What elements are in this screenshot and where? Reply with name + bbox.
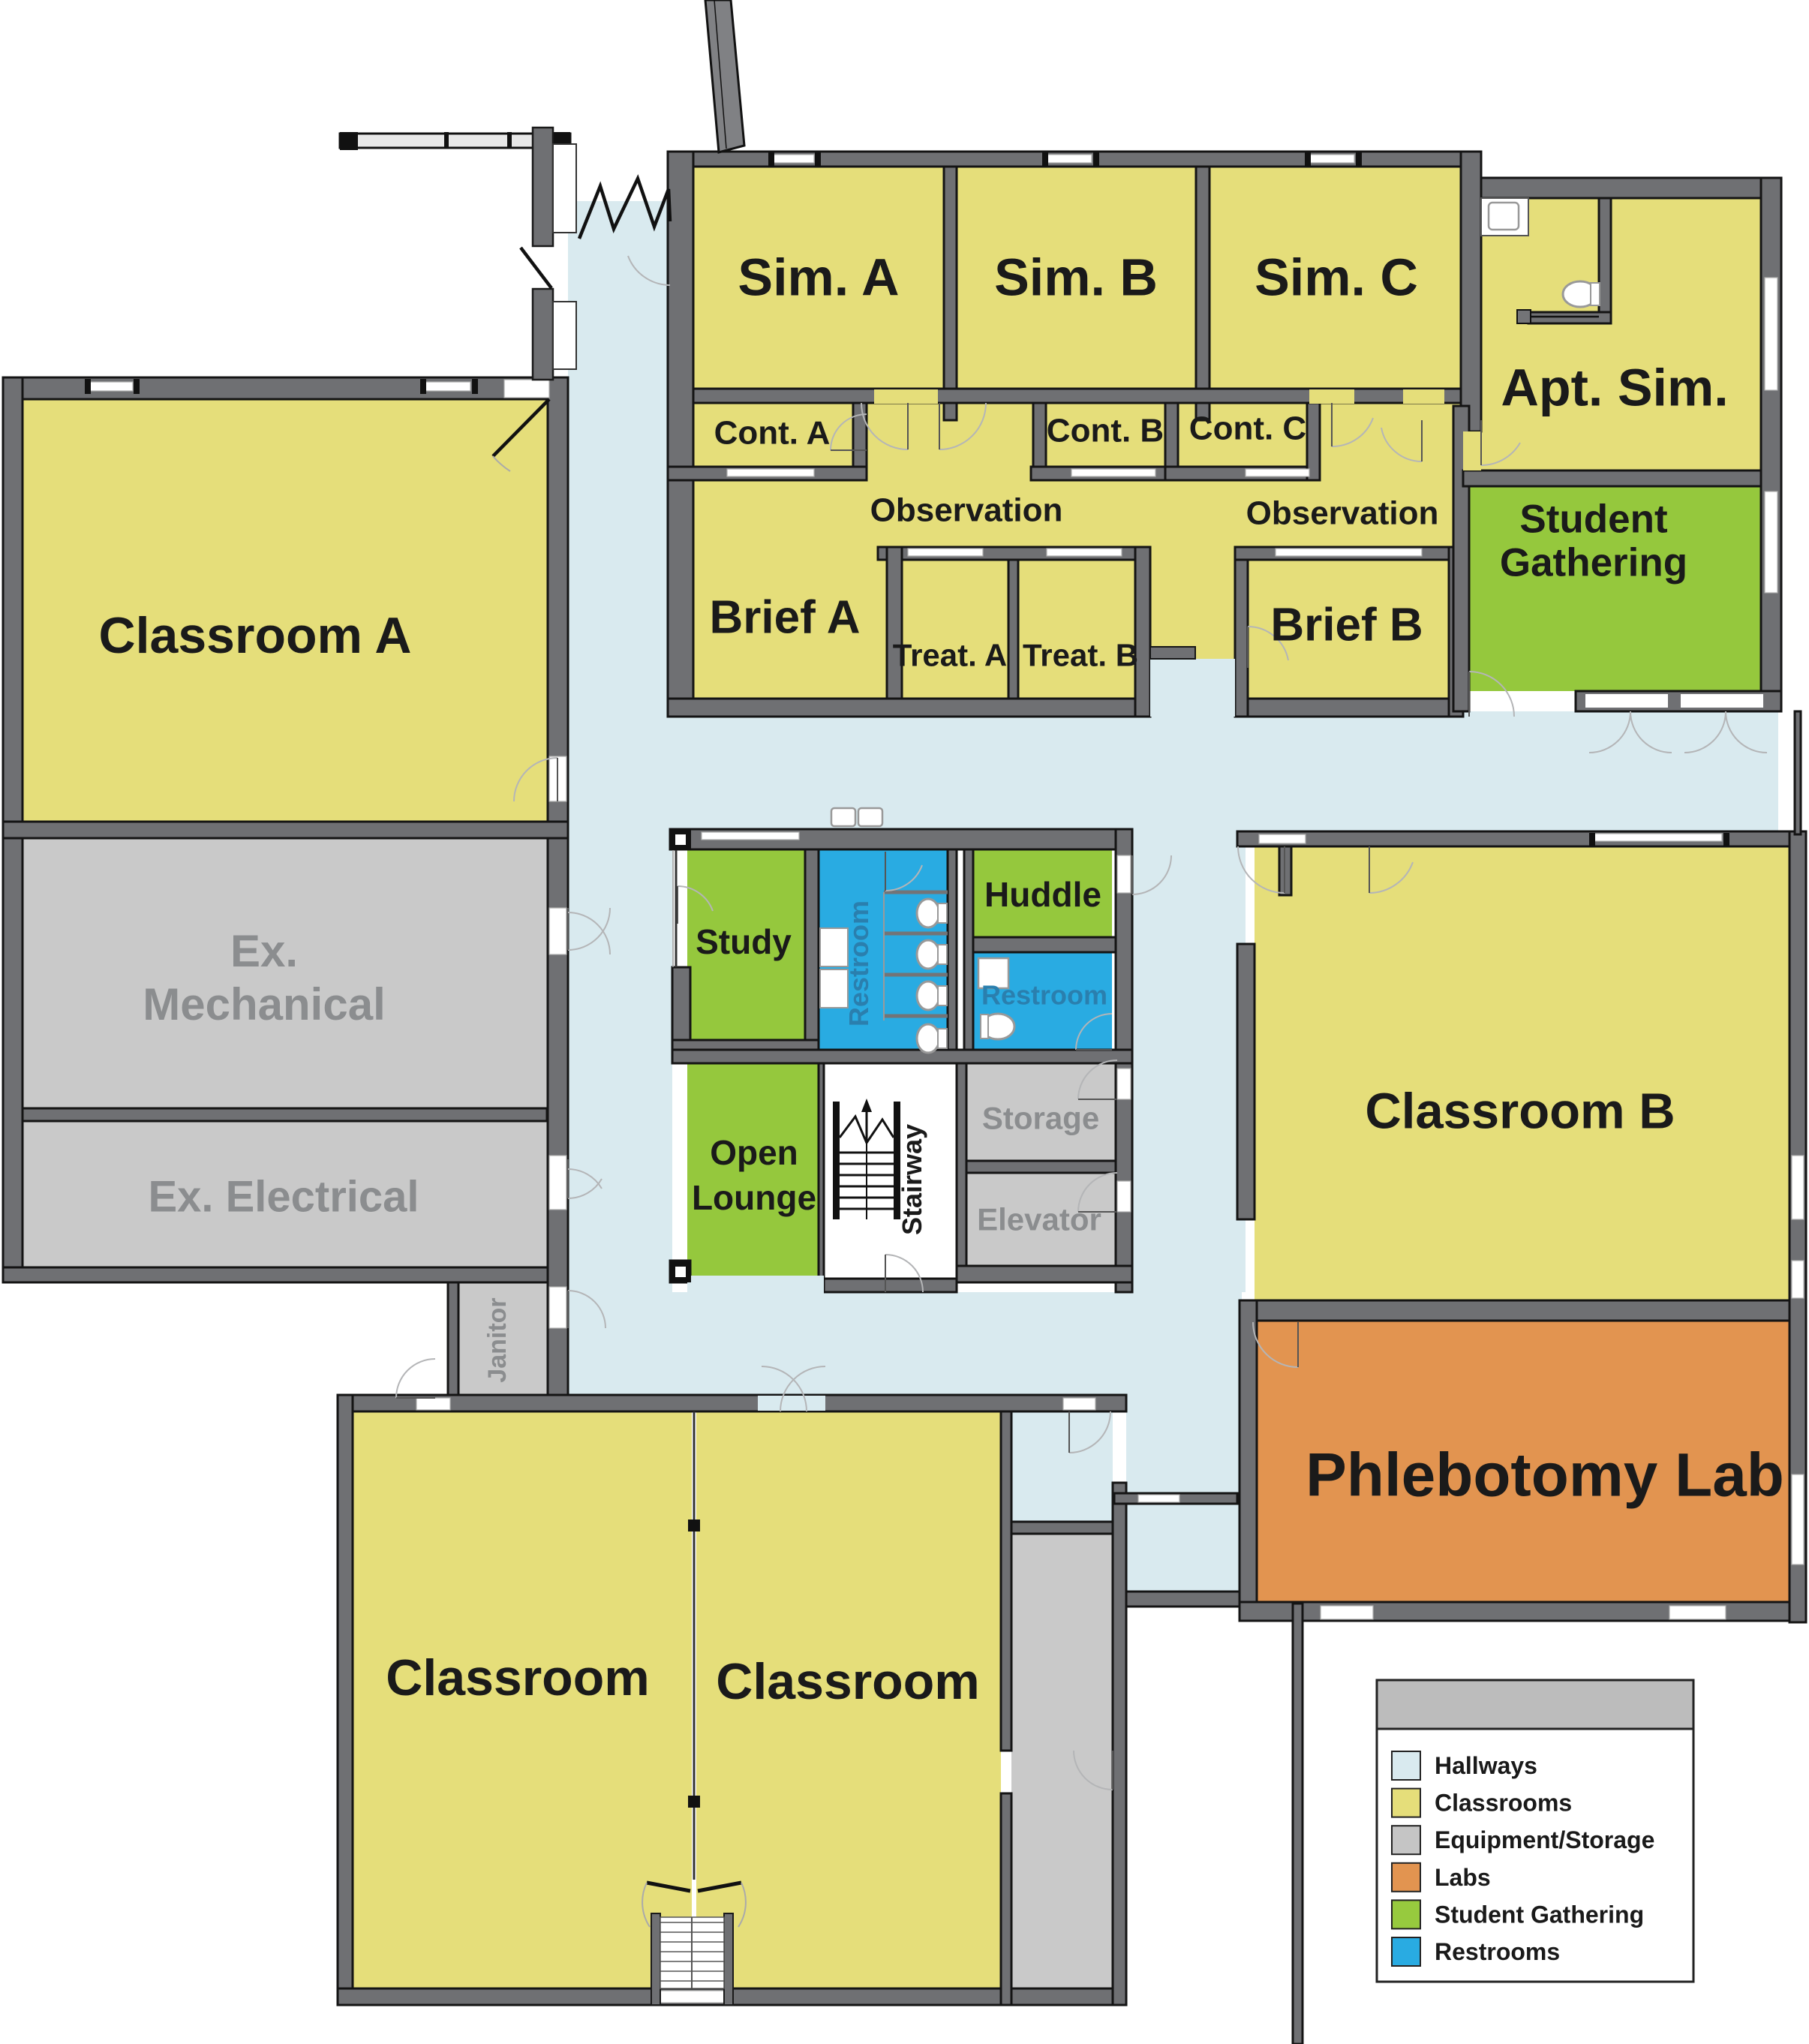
svg-text:Restrooms: Restrooms	[1435, 1938, 1560, 1965]
svg-text:Open: Open	[710, 1133, 798, 1172]
svg-text:Brief B: Brief B	[1270, 600, 1423, 651]
svg-text:Sim. C: Sim. C	[1255, 248, 1418, 307]
svg-text:Gathering: Gathering	[1500, 541, 1687, 585]
svg-text:Student: Student	[1519, 497, 1667, 542]
svg-text:Apt. Sim.: Apt. Sim.	[1501, 359, 1728, 417]
svg-text:Observation: Observation	[1246, 494, 1439, 531]
svg-text:Classrooms: Classrooms	[1435, 1790, 1572, 1817]
svg-text:Sim. B: Sim. B	[994, 248, 1158, 307]
svg-text:Restroom: Restroom	[843, 900, 874, 1027]
svg-text:Classroom: Classroom	[386, 1649, 649, 1706]
svg-text:Equipment/Storage: Equipment/Storage	[1435, 1826, 1654, 1853]
svg-text:Observation: Observation	[870, 491, 1063, 528]
svg-text:Sim. A: Sim. A	[738, 248, 899, 307]
svg-text:Treat. B: Treat. B	[1023, 638, 1138, 673]
svg-text:Cont. B: Cont. B	[1047, 412, 1164, 449]
svg-text:Huddle: Huddle	[984, 875, 1101, 914]
svg-text:Stairway: Stairway	[897, 1124, 927, 1235]
svg-text:Labs: Labs	[1435, 1864, 1491, 1891]
svg-text:Classroom: Classroom	[716, 1653, 979, 1710]
svg-text:Restroom: Restroom	[981, 980, 1107, 1011]
svg-text:Study: Study	[696, 922, 792, 961]
svg-text:Ex. Electrical: Ex. Electrical	[148, 1172, 419, 1221]
svg-text:Phlebotomy Lab: Phlebotomy Lab	[1306, 1441, 1784, 1510]
svg-text:Janitor: Janitor	[483, 1297, 512, 1382]
svg-text:Hallways: Hallways	[1435, 1752, 1537, 1779]
svg-text:Mechanical: Mechanical	[143, 979, 385, 1030]
svg-text:Classroom B: Classroom B	[1365, 1083, 1675, 1139]
svg-text:Lounge: Lounge	[692, 1178, 816, 1217]
svg-text:Student Gathering: Student Gathering	[1435, 1901, 1644, 1928]
svg-text:Brief A: Brief A	[710, 592, 861, 644]
svg-text:Classroom A: Classroom A	[99, 607, 412, 664]
svg-text:Cont. A: Cont. A	[714, 414, 831, 451]
svg-text:Ex.: Ex.	[230, 926, 298, 976]
svg-text:Storage: Storage	[982, 1101, 1099, 1136]
svg-text:Treat. A: Treat. A	[893, 638, 1008, 673]
svg-text:Cont. C: Cont. C	[1189, 410, 1306, 446]
svg-text:Elevator: Elevator	[977, 1202, 1101, 1237]
